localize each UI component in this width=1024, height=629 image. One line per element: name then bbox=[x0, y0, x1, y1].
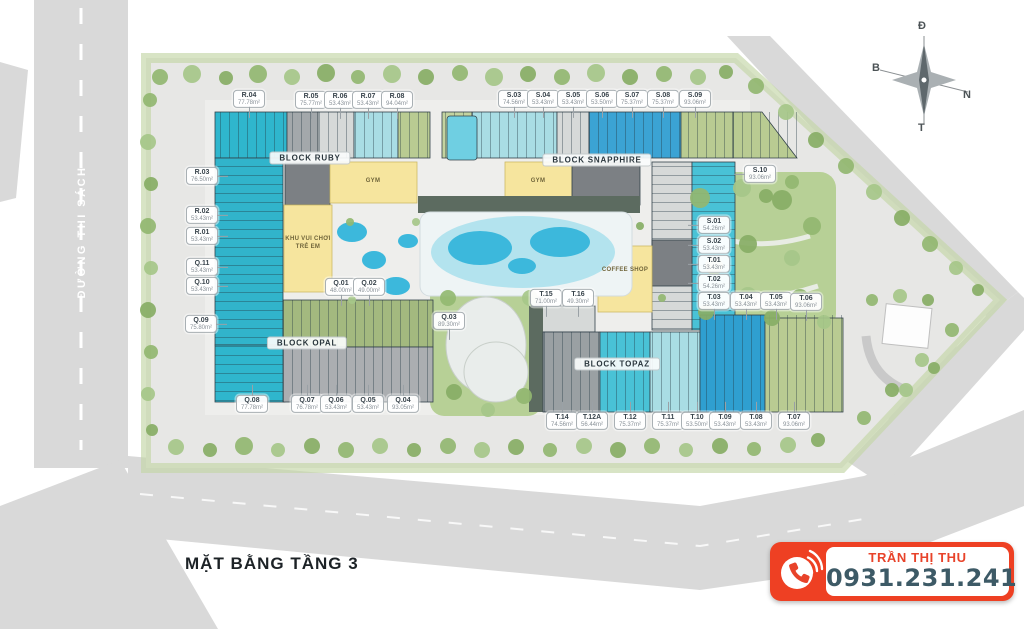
block-name-label: BLOCK TOPAZ bbox=[574, 358, 660, 371]
unit-area: 53.50m² bbox=[685, 422, 709, 429]
unit-label: R.05 75.77m² bbox=[295, 91, 327, 109]
unit-area: 53.43m² bbox=[190, 287, 214, 294]
unit-label: R.03 76.50m² bbox=[186, 167, 218, 185]
unit-id: T.12A bbox=[580, 414, 604, 422]
unit-id: S.07 bbox=[620, 92, 644, 100]
unit-label: S.08 75.37m² bbox=[647, 90, 679, 108]
unit-id: Q.08 bbox=[240, 397, 264, 405]
unit-label: T.12A 56.44m² bbox=[576, 412, 608, 430]
unit-id: Q.07 bbox=[295, 397, 319, 405]
unit-id: T.04 bbox=[734, 294, 758, 302]
unit-label: S.10 93.06m² bbox=[744, 165, 776, 183]
unit-label: T.08 53.43m² bbox=[740, 412, 772, 430]
unit-area: 74.56m² bbox=[550, 422, 574, 429]
unit-area: 53.43m² bbox=[190, 268, 214, 275]
unit-label: S.09 93.06m² bbox=[679, 90, 711, 108]
compass-letter-bottom: T bbox=[918, 122, 925, 134]
unit-label: S.07 75.37m² bbox=[616, 90, 648, 108]
unit-label: R.08 94.04m² bbox=[381, 91, 413, 109]
amenity-label: COFFEE SHOP bbox=[602, 267, 648, 275]
unit-area: 76.78m² bbox=[295, 405, 319, 412]
agent-phone[interactable]: 0931.231.241 bbox=[826, 566, 1009, 590]
unit-id: Q.11 bbox=[190, 260, 214, 268]
unit-label: Q.09 75.80m² bbox=[185, 315, 217, 333]
phone-icon bbox=[776, 549, 824, 594]
unit-area: 93.06m² bbox=[748, 175, 772, 182]
unit-label: S.05 53.43m² bbox=[557, 90, 589, 108]
unit-id: S.02 bbox=[702, 238, 726, 246]
unit-id: R.07 bbox=[356, 93, 380, 101]
unit-label: Q.04 93.05m² bbox=[387, 395, 419, 413]
compass-letter-right: N bbox=[963, 89, 971, 101]
unit-area: 89.30m² bbox=[437, 322, 461, 329]
block-name-label: BLOCK RUBY bbox=[269, 152, 350, 165]
agent-name: TRẦN THỊ THU bbox=[826, 551, 1009, 565]
unit-area: 49.30m² bbox=[566, 299, 590, 306]
unit-area: 75.37m² bbox=[618, 422, 642, 429]
unit-label: T.05 53.43m² bbox=[760, 292, 792, 310]
unit-id: R.01 bbox=[190, 229, 214, 237]
unit-label: S.02 53.43m² bbox=[698, 236, 730, 254]
block-name-label: BLOCK OPAL bbox=[267, 337, 347, 350]
unit-label: T.14 74.56m² bbox=[546, 412, 578, 430]
unit-area: 53.43m² bbox=[190, 237, 214, 244]
unit-label: T.15 71.00m² bbox=[530, 289, 562, 307]
unit-id: T.11 bbox=[656, 414, 680, 422]
unit-id: T.07 bbox=[782, 414, 806, 422]
unit-id: S.03 bbox=[502, 92, 526, 100]
unit-area: 76.50m² bbox=[190, 177, 214, 184]
amenity-label: GYM bbox=[531, 178, 546, 186]
street-name: ĐƯỜNG THI SÁCH bbox=[76, 166, 88, 299]
compass-icon: Đ B N T bbox=[856, 16, 992, 144]
unit-area: 49.00m² bbox=[357, 288, 381, 295]
unit-area: 75.37m² bbox=[620, 100, 644, 107]
unit-area: 54.26m² bbox=[702, 226, 726, 233]
unit-id: S.06 bbox=[590, 92, 614, 100]
unit-area: 77.78m² bbox=[240, 405, 264, 412]
unit-label: Q.10 53.43m² bbox=[186, 277, 218, 295]
unit-label: T.16 49.30m² bbox=[562, 289, 594, 307]
unit-area: 77.78m² bbox=[237, 100, 261, 107]
unit-id: Q.03 bbox=[437, 314, 461, 322]
unit-id: S.10 bbox=[748, 167, 772, 175]
plan-title: MẶT BẰNG TẦNG 3 bbox=[185, 554, 359, 574]
unit-id: S.09 bbox=[683, 92, 707, 100]
unit-id: Q.09 bbox=[189, 317, 213, 325]
unit-area: 53.50m² bbox=[590, 100, 614, 107]
unit-area: 56.44m² bbox=[580, 422, 604, 429]
unit-label: T.06 93.06m² bbox=[790, 293, 822, 311]
unit-area: 75.80m² bbox=[189, 325, 213, 332]
unit-label: Q.05 53.43m² bbox=[352, 395, 384, 413]
compass-letter-top: Đ bbox=[918, 20, 926, 32]
amenity-label: KHU VUI CHƠI TRẺ EM bbox=[285, 236, 330, 252]
unit-id: Q.01 bbox=[329, 280, 353, 288]
unit-id: T.10 bbox=[685, 414, 709, 422]
unit-label: S.04 53.43m² bbox=[527, 90, 559, 108]
unit-id: T.01 bbox=[702, 257, 726, 265]
unit-label: R.01 53.43m² bbox=[186, 227, 218, 245]
unit-id: T.05 bbox=[764, 294, 788, 302]
unit-id: S.08 bbox=[651, 92, 675, 100]
unit-label: T.07 93.06m² bbox=[778, 412, 810, 430]
unit-label: T.01 53.43m² bbox=[698, 255, 730, 273]
unit-label: R.04 77.78m² bbox=[233, 90, 265, 108]
unit-label: Q.06 53.43m² bbox=[320, 395, 352, 413]
unit-label: R.07 53.43m² bbox=[352, 91, 384, 109]
compass-letter-left: B bbox=[872, 62, 880, 74]
unit-area: 75.37m² bbox=[651, 100, 675, 107]
unit-area: 53.43m² bbox=[734, 302, 758, 309]
unit-id: T.03 bbox=[702, 294, 726, 302]
unit-id: Q.02 bbox=[357, 280, 381, 288]
unit-label: T.03 53.43m² bbox=[698, 292, 730, 310]
unit-area: 53.43m² bbox=[356, 405, 380, 412]
unit-id: Q.05 bbox=[356, 397, 380, 405]
unit-label: Q.08 77.78m² bbox=[236, 395, 268, 413]
unit-id: R.03 bbox=[190, 169, 214, 177]
unit-id: R.05 bbox=[299, 93, 323, 101]
unit-area: 71.00m² bbox=[534, 299, 558, 306]
unit-label: T.12 75.37m² bbox=[614, 412, 646, 430]
unit-area: 53.43m² bbox=[561, 100, 585, 107]
unit-area: 53.43m² bbox=[356, 101, 380, 108]
unit-id: Q.10 bbox=[190, 279, 214, 287]
unit-area: 53.43m² bbox=[702, 302, 726, 309]
unit-area: 93.06m² bbox=[782, 422, 806, 429]
unit-id: T.02 bbox=[702, 276, 726, 284]
unit-label: T.02 54.26m² bbox=[698, 274, 730, 292]
unit-id: T.09 bbox=[713, 414, 737, 422]
unit-area: 53.43m² bbox=[713, 422, 737, 429]
unit-id: S.05 bbox=[561, 92, 585, 100]
block-name-label: BLOCK SNAPPHIRE bbox=[542, 154, 651, 167]
unit-area: 53.43m² bbox=[328, 101, 352, 108]
unit-area: 53.43m² bbox=[764, 302, 788, 309]
unit-area: 74.56m² bbox=[502, 100, 526, 107]
unit-area: 53.43m² bbox=[702, 246, 726, 253]
floor-plan-page: ĐƯỜNG THI SÁCH R.04 77.78m² R.05 75.77m²… bbox=[0, 0, 1024, 629]
unit-label: S.01 54.26m² bbox=[698, 216, 730, 234]
unit-area: 53.43m² bbox=[324, 405, 348, 412]
unit-label: S.03 74.56m² bbox=[498, 90, 530, 108]
unit-area: 93.06m² bbox=[794, 303, 818, 310]
unit-id: R.06 bbox=[328, 93, 352, 101]
unit-area: 93.06m² bbox=[683, 100, 707, 107]
amenity-label: GYM bbox=[366, 178, 381, 186]
unit-id: Q.04 bbox=[391, 397, 415, 405]
unit-area: 75.37m² bbox=[656, 422, 680, 429]
unit-id: T.12 bbox=[618, 414, 642, 422]
unit-label: T.09 53.43m² bbox=[709, 412, 741, 430]
unit-area: 53.43m² bbox=[744, 422, 768, 429]
unit-area: 75.77m² bbox=[299, 101, 323, 108]
unit-id: R.08 bbox=[385, 93, 409, 101]
contact-card: TRẦN THỊ THU 0931.231.241 bbox=[826, 547, 1009, 596]
unit-id: T.16 bbox=[566, 291, 590, 299]
unit-area: 94.04m² bbox=[385, 101, 409, 108]
unit-id: R.02 bbox=[190, 208, 214, 216]
unit-label: Q.11 53.43m² bbox=[186, 258, 218, 276]
unit-id: T.06 bbox=[794, 295, 818, 303]
unit-id: S.01 bbox=[702, 218, 726, 226]
unit-label: Q.03 89.30m² bbox=[433, 312, 465, 330]
unit-id: T.15 bbox=[534, 291, 558, 299]
unit-label: T.04 53.43m² bbox=[730, 292, 762, 310]
unit-label: R.02 53.43m² bbox=[186, 206, 218, 224]
unit-area: 53.43m² bbox=[531, 100, 555, 107]
unit-label: S.06 53.50m² bbox=[586, 90, 618, 108]
unit-area: 53.43m² bbox=[702, 265, 726, 272]
unit-label: Q.07 76.78m² bbox=[291, 395, 323, 413]
unit-label: T.11 75.37m² bbox=[652, 412, 684, 430]
unit-area: 48.00m² bbox=[329, 288, 353, 295]
unit-label: Q.02 49.00m² bbox=[353, 278, 385, 296]
unit-id: Q.06 bbox=[324, 397, 348, 405]
unit-area: 54.26m² bbox=[702, 284, 726, 291]
unit-area: 53.43m² bbox=[190, 216, 214, 223]
unit-id: S.04 bbox=[531, 92, 555, 100]
unit-id: T.08 bbox=[744, 414, 768, 422]
unit-id: R.04 bbox=[237, 92, 261, 100]
unit-area: 93.05m² bbox=[391, 405, 415, 412]
unit-id: T.14 bbox=[550, 414, 574, 422]
contact-badge[interactable]: TRẦN THỊ THU 0931.231.241 bbox=[770, 542, 1014, 601]
